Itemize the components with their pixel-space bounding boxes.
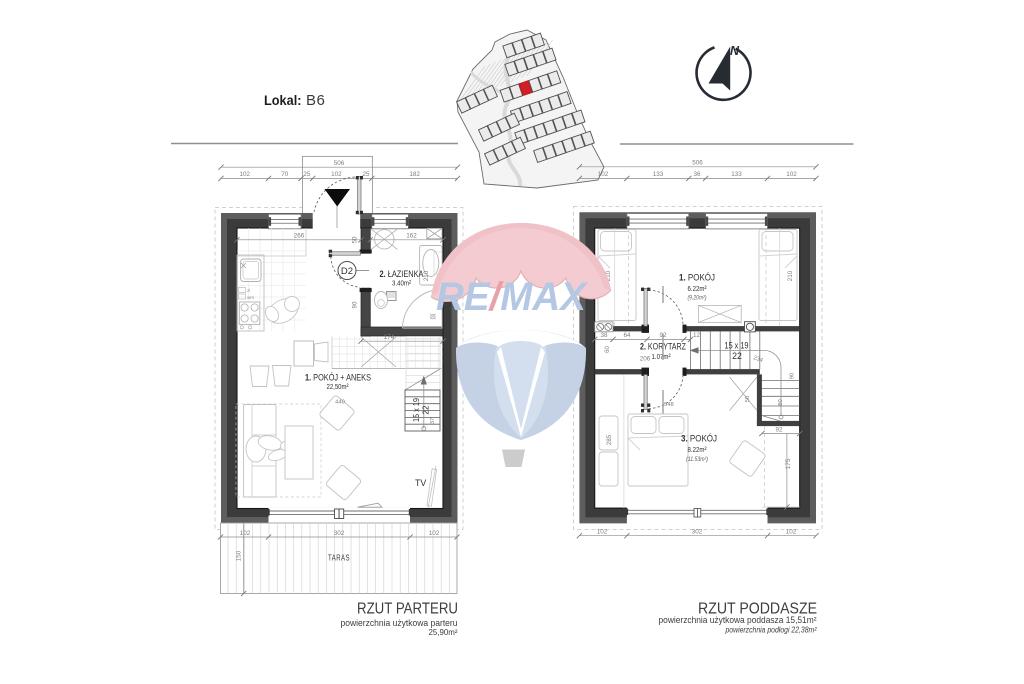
svg-text:zl: zl bbox=[247, 288, 250, 293]
svg-text:210: 210 bbox=[787, 270, 794, 281]
svg-text:6.22m²: 6.22m² bbox=[688, 284, 707, 293]
svg-text:8.22m²: 8.22m² bbox=[688, 445, 707, 454]
svg-text:RE/MAX: RE/MAX bbox=[436, 275, 588, 319]
svg-text:102: 102 bbox=[239, 171, 250, 178]
svg-text:102: 102 bbox=[786, 529, 797, 536]
svg-text:22: 22 bbox=[732, 351, 742, 361]
svg-text:102: 102 bbox=[597, 529, 608, 536]
svg-text:36: 36 bbox=[693, 171, 701, 178]
svg-text:N: N bbox=[730, 44, 740, 58]
svg-text:D2: D2 bbox=[341, 266, 353, 277]
svg-text:506: 506 bbox=[334, 160, 345, 167]
svg-text:64: 64 bbox=[623, 332, 631, 339]
svg-text:102: 102 bbox=[429, 530, 440, 537]
svg-text:3. POKÓJ: 3. POKÓJ bbox=[681, 434, 717, 445]
svg-text:133: 133 bbox=[653, 171, 664, 178]
svg-text:60: 60 bbox=[604, 346, 611, 354]
svg-text:powierzchnia podłogi 22,38m²: powierzchnia podłogi 22,38m² bbox=[725, 626, 817, 635]
svg-text:50: 50 bbox=[745, 396, 751, 402]
svg-text:25: 25 bbox=[362, 171, 370, 178]
svg-text:15 x 19: 15 x 19 bbox=[412, 398, 421, 422]
svg-text:182: 182 bbox=[409, 171, 420, 178]
svg-text:302: 302 bbox=[692, 529, 703, 536]
svg-text:TV: TV bbox=[415, 478, 426, 488]
svg-text:(9.20m²): (9.20m²) bbox=[688, 295, 707, 302]
svg-text:102: 102 bbox=[598, 171, 609, 178]
svg-text:RZUT PARTERU: RZUT PARTERU bbox=[357, 601, 458, 618]
svg-text:38: 38 bbox=[600, 332, 608, 339]
svg-text:50: 50 bbox=[352, 236, 359, 243]
svg-text:266: 266 bbox=[294, 233, 305, 240]
svg-text:210: 210 bbox=[423, 270, 430, 281]
svg-text:285: 285 bbox=[606, 434, 613, 445]
svg-text:1.07m²: 1.07m² bbox=[652, 352, 671, 361]
svg-text:1. POKÓJ: 1. POKÓJ bbox=[679, 273, 715, 284]
svg-text:22: 22 bbox=[422, 405, 431, 415]
svg-text:powierzchnia użytkowa parteru: powierzchnia użytkowa parteru bbox=[341, 618, 458, 628]
svg-text:wm: wm bbox=[247, 295, 254, 300]
svg-text:175: 175 bbox=[785, 458, 792, 469]
svg-text:37: 37 bbox=[430, 418, 436, 424]
svg-text:162: 162 bbox=[406, 233, 417, 240]
svg-text:TARAS: TARAS bbox=[328, 554, 350, 563]
svg-text:15 x 19: 15 x 19 bbox=[725, 341, 749, 351]
svg-text:25: 25 bbox=[303, 171, 311, 178]
svg-text:548: 548 bbox=[664, 402, 674, 408]
svg-text:(11.53m²): (11.53m²) bbox=[686, 456, 708, 463]
svg-text:302: 302 bbox=[334, 530, 345, 537]
svg-text:22,50m²: 22,50m² bbox=[327, 382, 349, 391]
svg-text:90: 90 bbox=[352, 301, 359, 308]
svg-text:102: 102 bbox=[240, 530, 251, 537]
svg-text:440: 440 bbox=[335, 400, 345, 406]
svg-text:powierzchnia użytkowa poddasza: powierzchnia użytkowa poddasza 15,51m² bbox=[659, 615, 817, 625]
svg-text:102: 102 bbox=[786, 171, 797, 178]
svg-text:12: 12 bbox=[693, 332, 701, 339]
svg-text:506: 506 bbox=[692, 160, 703, 167]
svg-text:B6: B6 bbox=[306, 92, 325, 109]
svg-text:206: 206 bbox=[640, 356, 651, 363]
svg-text:133: 133 bbox=[731, 171, 742, 178]
svg-text:92: 92 bbox=[775, 426, 783, 433]
svg-text:25,90m²: 25,90m² bbox=[429, 628, 458, 637]
svg-text:174: 174 bbox=[384, 334, 395, 341]
svg-text:150: 150 bbox=[236, 550, 243, 561]
svg-text:Lokal:: Lokal: bbox=[264, 93, 302, 108]
svg-text:102: 102 bbox=[331, 171, 342, 178]
svg-text:70: 70 bbox=[281, 171, 289, 178]
svg-text:90: 90 bbox=[790, 373, 796, 379]
svg-text:3.40m²: 3.40m² bbox=[392, 279, 411, 288]
svg-text:80: 80 bbox=[778, 399, 784, 405]
